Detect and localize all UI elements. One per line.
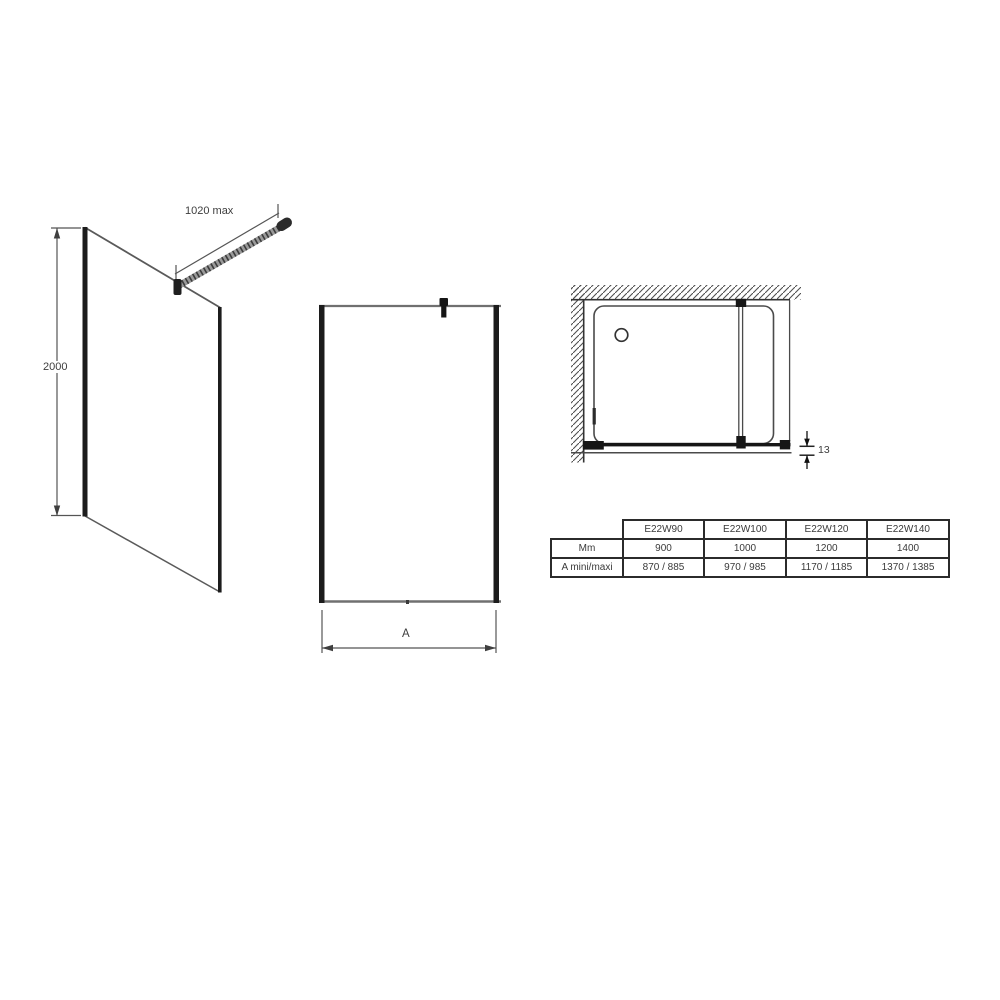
table-row-mm: Mm 900 1000 1200 1400 (551, 539, 949, 558)
width-dim-arrow-left (322, 645, 333, 652)
perspective-view-figure (30, 190, 310, 630)
front-view-figure (310, 295, 510, 665)
table-cell: 1370 / 1385 (867, 558, 949, 577)
spec-table: E22W90 E22W100 E22W120 E22W140 Mm 900 10… (550, 519, 950, 578)
table-header-cell: E22W120 (786, 520, 867, 539)
plan-view-figure (555, 275, 855, 485)
height-dim-arrow-bottom (54, 506, 60, 517)
glass-panel-plan (571, 440, 792, 453)
row-label-cell: A mini/maxi (551, 558, 623, 577)
panel-end-cap (780, 440, 790, 449)
width-dim-arrow-right (485, 645, 496, 652)
drain-icon (615, 329, 628, 342)
row-label-cell: Mm (551, 539, 623, 558)
support-bar (174, 223, 288, 296)
table-header-cell: E22W90 (623, 520, 704, 539)
shower-tray (594, 306, 774, 444)
table-cell: 900 (623, 539, 704, 558)
table-row-a-minmax: A mini/maxi 870 / 885 970 / 985 1170 / 1… (551, 558, 949, 577)
table-cell: 1000 (704, 539, 786, 558)
offset-dimension-label: 13 (816, 444, 832, 456)
panel-front-edge (218, 307, 222, 593)
left-wall-profile (319, 305, 325, 603)
table-cell: 1400 (867, 539, 949, 558)
table-cell: 970 / 985 (704, 558, 786, 577)
table-corner-cell (551, 520, 623, 539)
bar-clamp (174, 279, 182, 295)
table-header-cell: E22W140 (867, 520, 949, 539)
table-header-row: E22W90 E22W100 E22W120 E22W140 (551, 520, 949, 539)
table-header-cell: E22W100 (704, 520, 786, 539)
glass-panel-front (319, 305, 501, 604)
right-panel-edge (494, 305, 500, 603)
offset-dimension (800, 431, 815, 469)
table-cell: 870 / 885 (623, 558, 704, 577)
table-cell: 1170 / 1185 (786, 558, 867, 577)
height-dim-arrow-top (54, 228, 60, 239)
wall-profile-plan (583, 441, 604, 450)
width-dimension-label: A (400, 628, 412, 640)
wall-hatching (571, 285, 801, 463)
bar-wall-bracket (736, 299, 746, 307)
bar-bracket (440, 298, 449, 318)
support-bar-plan (736, 299, 746, 449)
tray-edge-mark (593, 408, 596, 425)
height-dimension-label: 2000 (41, 361, 69, 373)
glass-panel (83, 227, 222, 593)
bar-dimension-label: 1020 max (183, 205, 235, 217)
table-cell: 1200 (786, 539, 867, 558)
bar-end-cap (282, 223, 288, 227)
bottom-center-mark (406, 600, 409, 604)
bar-panel-fitting (736, 436, 745, 449)
wall-profile-edge (83, 227, 88, 517)
